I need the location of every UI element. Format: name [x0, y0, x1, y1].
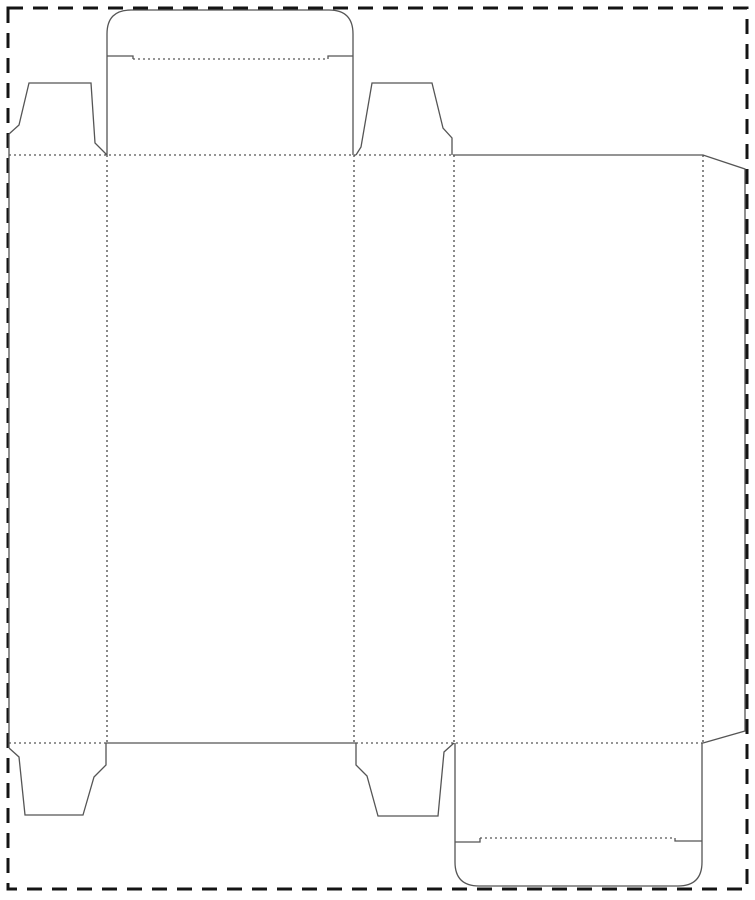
top-tuck-left-shoulder	[107, 56, 133, 59]
cut-lines	[9, 10, 745, 886]
bottom-tuck-left-shoulder	[455, 838, 480, 842]
fold-lines	[9, 59, 703, 838]
top-tuck-right-shoulder	[328, 56, 353, 59]
bottom-tuck-flap-outline	[455, 743, 702, 886]
back-panel-top-and-glue-flap	[453, 155, 745, 743]
top-right-dust-flap	[356, 83, 452, 155]
top-tuck-flap-outline	[107, 10, 353, 155]
bottom-left-dust-flap	[9, 743, 106, 815]
bottom-tuck-right-shoulder	[675, 838, 702, 841]
dieline-artboard	[0, 0, 755, 900]
bottom-middle-dust-flap	[356, 743, 454, 816]
top-left-dust-flap	[9, 83, 107, 155]
trim-border	[8, 8, 747, 889]
dieline-canvas	[0, 0, 755, 900]
